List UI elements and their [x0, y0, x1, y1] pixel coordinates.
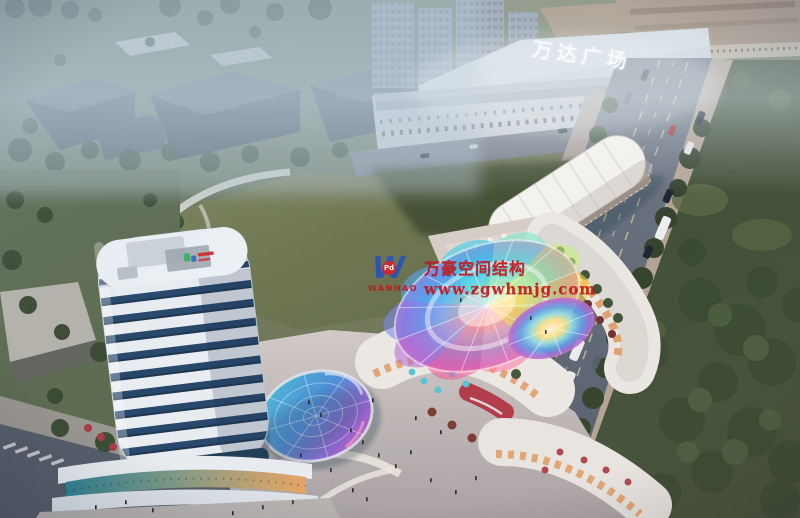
aerial-rendering: 万达广场 W Pd WANHAO 万豪空间结构 www.zgwhmjg.com — [0, 0, 800, 518]
scene-art — [0, 0, 800, 518]
vignette-overlay — [0, 0, 800, 518]
